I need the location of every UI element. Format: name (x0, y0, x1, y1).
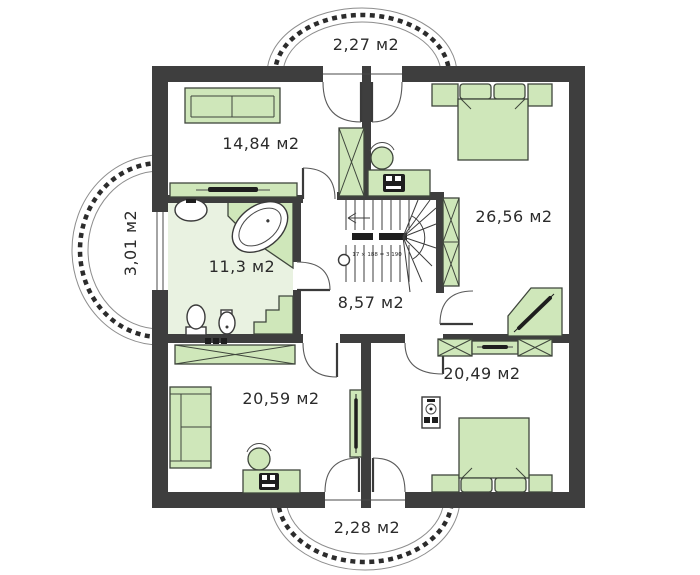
wardrobe-icon (518, 339, 552, 356)
desk-icon (243, 470, 300, 493)
staircase: 17 × 188 = 3 190 (339, 200, 437, 292)
audio-unit-icon (422, 397, 440, 428)
bathroom-label: 11,3 м2 (209, 257, 275, 276)
toilet-icon (186, 305, 206, 335)
mirror-icon (350, 390, 362, 457)
balcony-top-label: 2,27 м2 (333, 35, 399, 54)
hallway-label: 8,57 м2 (338, 293, 404, 312)
sofa-icon (170, 387, 211, 468)
wardrobe-icon (438, 339, 472, 356)
bedroom-bottom-left-furniture (170, 338, 362, 493)
corner-desk-icon (508, 288, 562, 336)
chair-icon (247, 443, 271, 470)
balcony-bottom-label: 2,28 м2 (334, 518, 400, 537)
bedroom-bottom-right-furniture (422, 339, 552, 492)
sofa-icon (185, 88, 280, 123)
stair-newel-post (339, 255, 350, 266)
double-bed-icon (432, 418, 552, 492)
doors (297, 82, 473, 492)
bedroom-top-left-label: 14,84 м2 (222, 134, 299, 153)
tall-wardrobe-icon (443, 198, 459, 286)
double-bed-icon (432, 84, 552, 160)
stair-up-arrow (348, 213, 370, 223)
sliding-wardrobe-icon (170, 183, 297, 197)
floor-plan-svg: 17 × 188 = 3 190 (0, 0, 700, 575)
chair-icon (370, 142, 394, 169)
bedroom-top-right-label: 26,56 м2 (475, 207, 552, 226)
bedroom-bottom-right-label: 20,49 м2 (443, 364, 520, 383)
dresser-icon (472, 341, 518, 354)
balcony-railing-left (72, 155, 160, 345)
stair-note-label: 17 × 188 = 3 190 (352, 252, 402, 258)
window-left (157, 212, 163, 290)
bedroom-bottom-left-label: 20,59 м2 (242, 389, 319, 408)
wardrobe-icon (339, 128, 364, 196)
sink-tap-icon (186, 199, 196, 203)
stair-winders (403, 200, 436, 292)
bidet-icon (219, 310, 235, 334)
floor-plan: 17 × 188 = 3 190 (0, 0, 700, 575)
desk-icon (368, 170, 430, 196)
balcony-left-label: 3,01 м2 (121, 210, 140, 276)
